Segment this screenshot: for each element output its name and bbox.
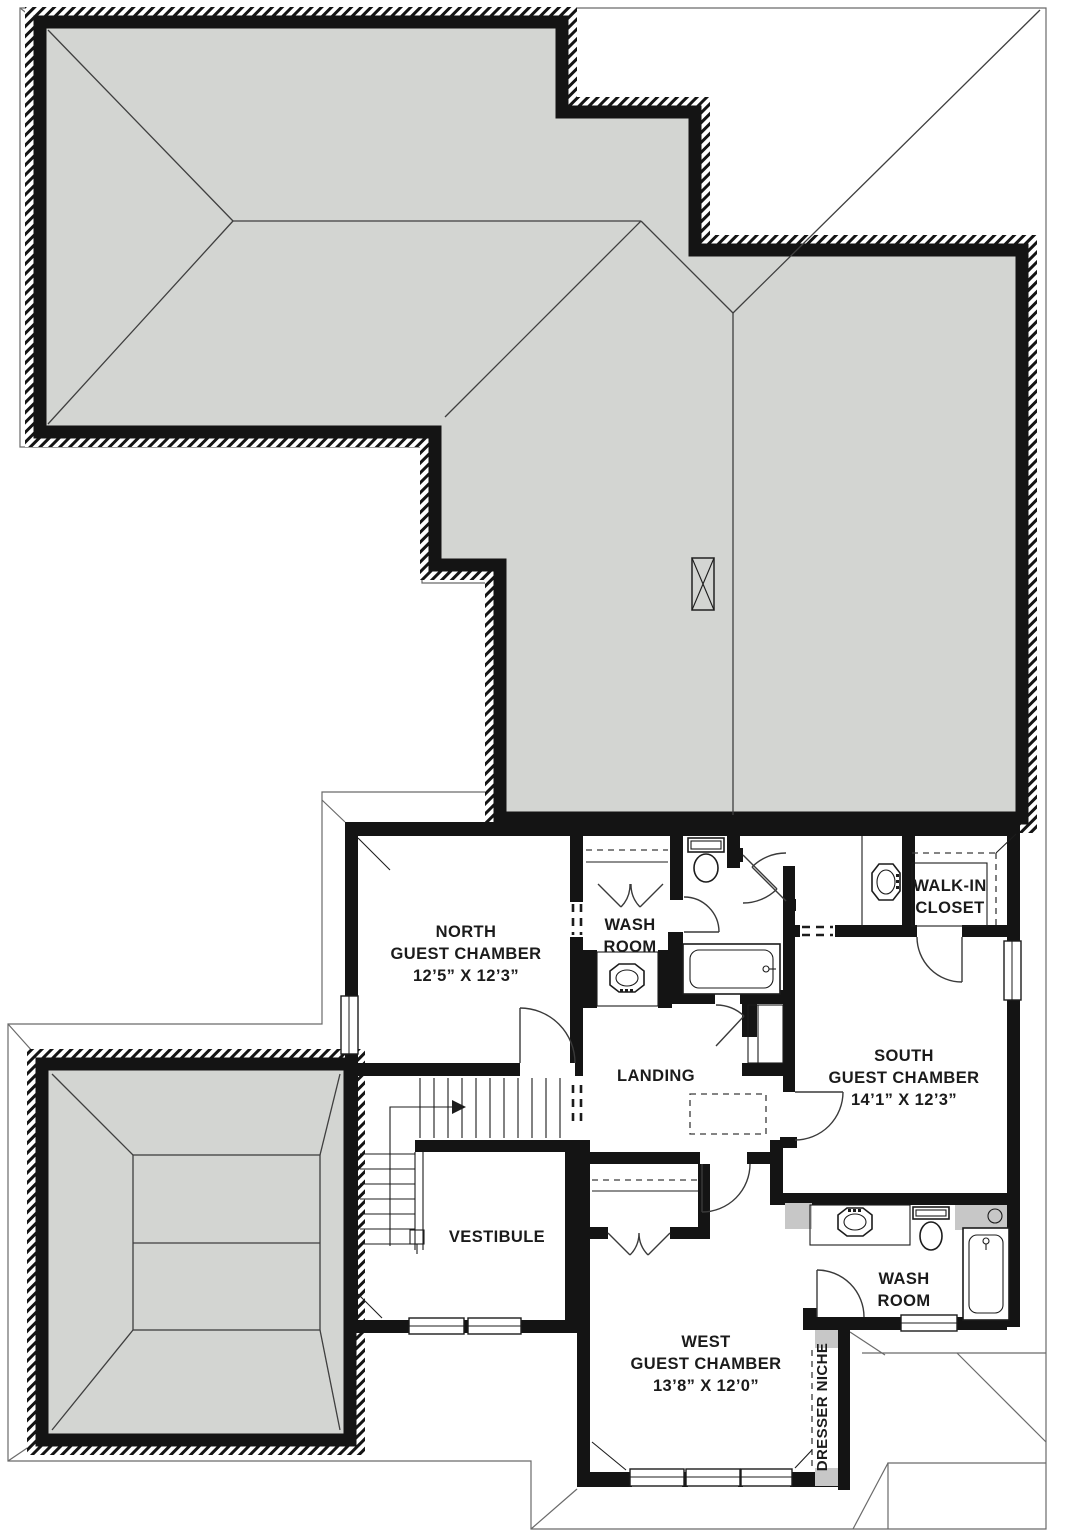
walk-in-closet-label2: CLOSET	[915, 899, 984, 917]
wash-room-south-label: WASH	[878, 1270, 929, 1288]
window	[741, 1469, 792, 1486]
dresser-niche-label: DRESSER NICHE	[814, 1343, 831, 1472]
north-chamber-label2: GUEST CHAMBER	[391, 945, 542, 963]
north-chamber-label: NORTH	[436, 923, 497, 941]
chimney	[692, 558, 714, 610]
sink-icon	[838, 1208, 872, 1236]
wash-room-north-label2: ROOM	[604, 938, 657, 956]
north-chamber-dims: 12’5” X 12’3”	[413, 967, 519, 985]
vestibule-label: VESTIBULE	[449, 1228, 545, 1246]
sink-icon	[610, 964, 644, 992]
south-chamber-dims: 14’1” X 12’3”	[851, 1091, 957, 1109]
west-chamber-label: WEST	[681, 1333, 730, 1351]
bathtub-icon	[683, 944, 780, 994]
wash-room-south-label2: ROOM	[878, 1292, 931, 1310]
window	[1004, 941, 1021, 1000]
west-chamber-label2: GUEST CHAMBER	[631, 1355, 782, 1373]
sink-icon	[872, 864, 900, 900]
south-chamber-label2: GUEST CHAMBER	[829, 1069, 980, 1087]
window	[630, 1469, 684, 1486]
wash-room-north-label: WASH	[604, 916, 655, 934]
west-chamber-dims: 13’8” X 12’0”	[653, 1377, 759, 1395]
walk-in-closet-label: WALK-IN	[913, 877, 986, 895]
landing-label: LANDING	[617, 1067, 695, 1085]
window	[686, 1469, 740, 1486]
south-chamber-label: SOUTH	[874, 1047, 934, 1065]
lower-left-roof	[42, 1064, 350, 1440]
window	[409, 1318, 464, 1334]
window	[468, 1318, 521, 1334]
window	[901, 1315, 957, 1331]
bathtub-icon	[963, 1228, 1009, 1320]
floor-plan-page: NORTH GUEST CHAMBER 12’5” X 12’3” WASH R…	[0, 0, 1066, 1536]
window	[341, 996, 358, 1054]
floor-plan-drawing: NORTH GUEST CHAMBER 12’5” X 12’3” WASH R…	[0, 0, 1066, 1536]
